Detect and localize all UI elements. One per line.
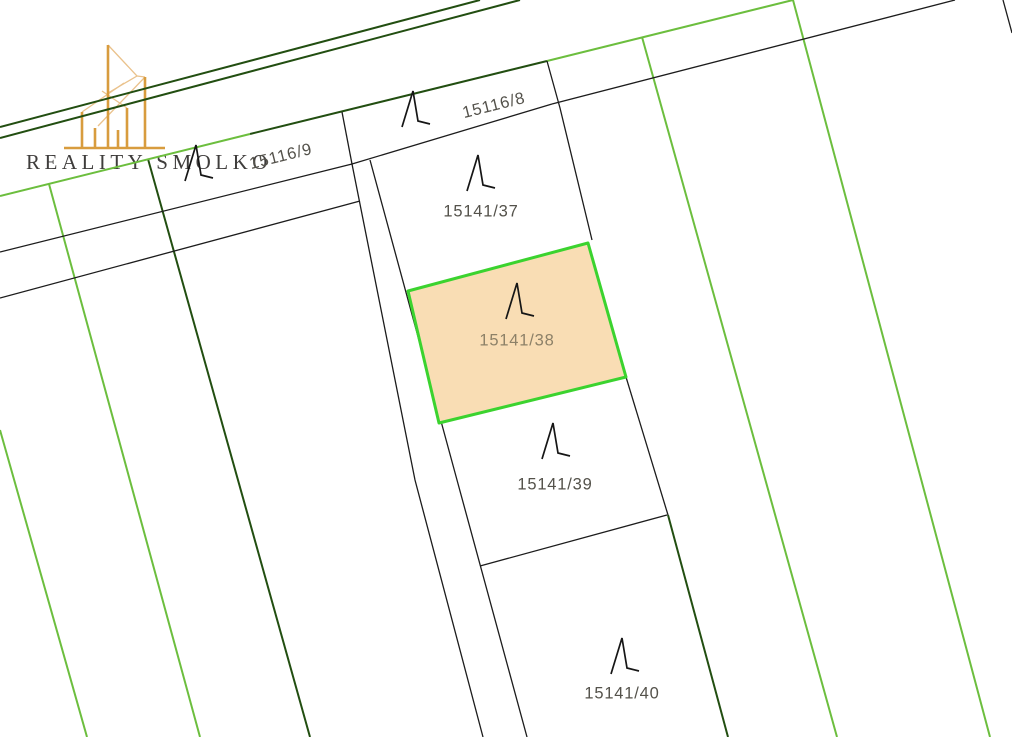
- parcel-label-15141-40: 15141/40: [584, 685, 659, 704]
- parcel-label-15141-38: 15141/38: [479, 332, 554, 351]
- parcel-label-15141-37: 15141/37: [443, 203, 518, 222]
- grassland-symbol: [467, 155, 495, 191]
- grassland-symbol: [185, 145, 213, 181]
- parcel-label-15141-39: 15141/39: [517, 476, 592, 495]
- cadastral-map-screenshot: REALITY SMOLKO: [0, 0, 1012, 737]
- grassland-symbol: [611, 638, 639, 674]
- grassland-symbol: [542, 423, 570, 459]
